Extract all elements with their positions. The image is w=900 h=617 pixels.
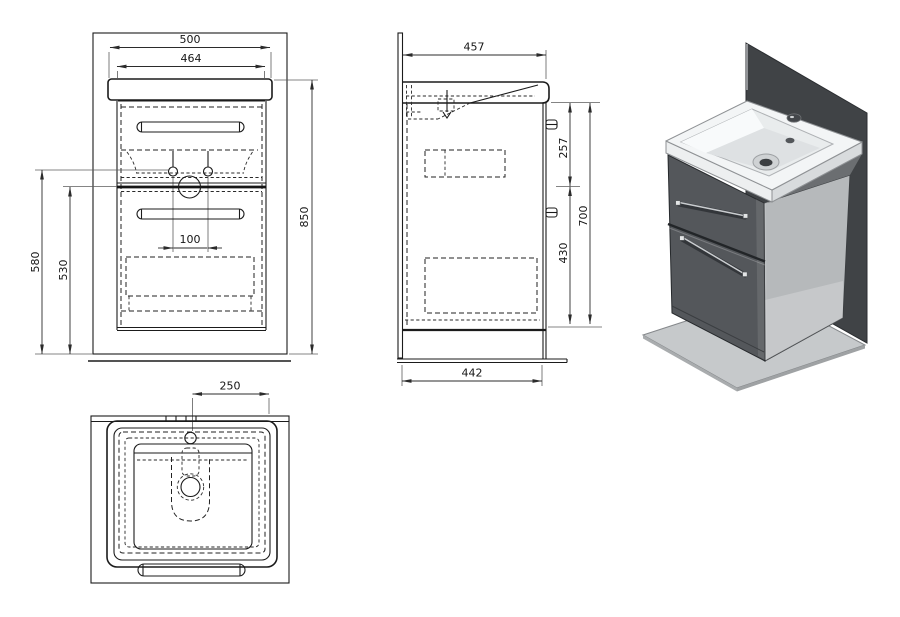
- floor-plate-side: [397, 359, 567, 363]
- drain-hole-3d: [760, 159, 773, 167]
- cabinet-hidden-inner: [125, 438, 259, 547]
- vanity-unit-drawing: 500 464 850 580 530 100: [0, 0, 900, 617]
- technical-drawing-page: 500 464 850 580 530 100: [0, 0, 900, 617]
- dim-plate-depth: 442: [402, 365, 542, 386]
- dim-lower-section: 430: [548, 187, 602, 328]
- overflow-channel: [182, 448, 199, 476]
- drain-anchor-symbol: [443, 90, 451, 118]
- drawer-divider: [117, 183, 266, 192]
- handle-top-view: [138, 564, 245, 576]
- tap-hole-3d: [787, 114, 801, 122]
- drain-hole: [181, 478, 200, 497]
- front-view: 500 464 850 580 530 100: [29, 33, 318, 361]
- dim-label-530: 530: [57, 260, 70, 281]
- dim-cabinet-width: 464: [117, 52, 265, 78]
- cabinet-hidden-outline: [119, 432, 265, 553]
- drawer-handle-bottom: [137, 209, 244, 219]
- mounting-clip-bottom: [546, 208, 557, 217]
- dim-label-430: 430: [557, 243, 570, 264]
- dim-label-442: 442: [462, 367, 483, 380]
- top-view: 250: [91, 380, 289, 584]
- mounting-clip-top: [546, 120, 557, 129]
- dim-tap-spacing: 100: [158, 233, 222, 248]
- dim-cabinet-height: 700: [577, 103, 590, 324]
- overflow-hole-3d: [786, 138, 795, 144]
- back-panel-outline: [93, 33, 287, 354]
- dim-upper-section: 257: [551, 103, 600, 187]
- dim-label-700: 700: [577, 206, 590, 227]
- washbasin-inner-rim: [114, 428, 270, 560]
- dim-tap-center-offset: 250: [193, 380, 270, 432]
- cabinet-side-outline: [403, 103, 546, 359]
- inner-drawer-box: [126, 257, 254, 311]
- overflow-outlet-left: [169, 167, 178, 176]
- dim-outlet-height: 580: [29, 170, 168, 354]
- dim-label-580: 580: [29, 252, 42, 273]
- dim-label-250: 250: [220, 380, 241, 393]
- dim-label-500: 500: [180, 33, 201, 46]
- dim-label-464: 464: [181, 52, 202, 65]
- render-3d: [643, 43, 867, 392]
- overflow-outlet-right: [204, 167, 213, 176]
- back-panel-side: [398, 33, 403, 358]
- dim-inner-height: 530: [57, 187, 117, 355]
- washbasin-front-outline: [108, 79, 272, 100]
- dim-label-457: 457: [464, 41, 485, 54]
- dim-label-850: 850: [298, 207, 311, 228]
- basin-side-profile: [403, 82, 549, 119]
- dim-total-depth: 457: [403, 41, 546, 80]
- tap-hole-glint: [790, 116, 794, 118]
- dim-total-height: 850: [274, 80, 318, 354]
- dim-label-257: 257: [557, 138, 570, 159]
- drawer-handle-top: [137, 122, 244, 132]
- side-view: 457 257 430 700 442: [397, 33, 602, 386]
- dim-label-100: 100: [180, 233, 201, 246]
